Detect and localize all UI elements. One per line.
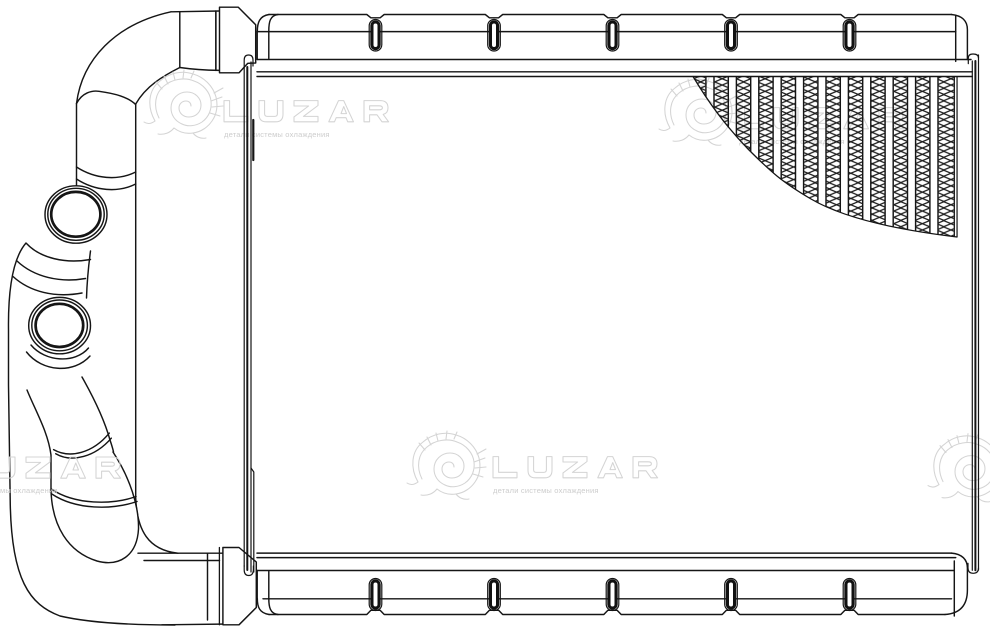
svg-text:детали системы охлаждения: детали системы охлаждения xyxy=(493,486,599,495)
svg-text:мы охлаждения: мы охлаждения xyxy=(0,486,58,495)
svg-text:детали системы охлаждения: детали системы охлаждения xyxy=(224,130,330,139)
